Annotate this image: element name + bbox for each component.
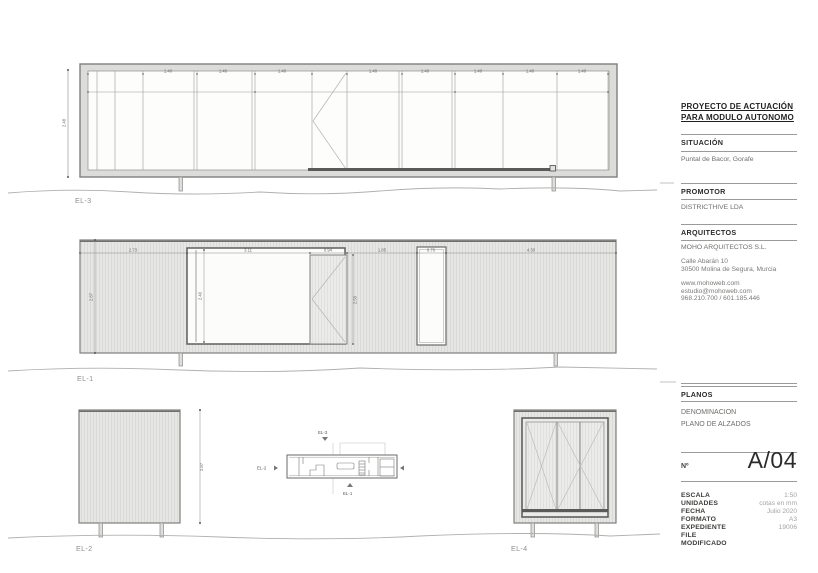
dim-label: 1.40 xyxy=(369,69,378,74)
dim-label: 1.40 xyxy=(474,69,483,74)
dim-label: 2.50 xyxy=(353,295,358,304)
arquitectos-contact: www.mohoweb.com estudio@mohoweb.com 968.… xyxy=(681,280,797,303)
ground-line xyxy=(8,534,660,539)
el3-label: EL-3 xyxy=(75,196,91,205)
dim-label: 4.30 xyxy=(527,248,536,253)
info-row-formato: FORMATOA3 xyxy=(681,516,797,523)
elevations-canvas: 1.40 1.40 1.40 1.40 1.40 1.40 1.40 1.40 … xyxy=(0,0,678,573)
support-post xyxy=(531,523,535,537)
dim-label: 0.94 xyxy=(324,248,333,253)
support-post xyxy=(179,177,183,191)
ground-line xyxy=(8,188,657,194)
dim-label: 1.40 xyxy=(421,69,430,74)
dim-label: 1.40 xyxy=(526,69,535,74)
el2-elevation-drawing: 2.87 EL-2 xyxy=(76,409,204,553)
info-row-unidades: UNIDADEScotas en mm xyxy=(681,500,797,507)
drawing-sheet: 1.40 1.40 1.40 1.40 1.40 1.40 1.40 1.40 … xyxy=(0,0,818,573)
denominacion-label: DENOMINACION xyxy=(681,409,797,416)
el2-label: EL-2 xyxy=(76,544,92,553)
dim-label: 2.87 xyxy=(89,292,94,301)
marker-el2-label: EL-2 xyxy=(257,466,267,471)
info-row-file: FILE xyxy=(681,532,797,539)
el3-door-track xyxy=(308,168,553,171)
situacion-value: Puntal de Bacor, Gorafe xyxy=(681,156,797,163)
arquitectos-heading: ARQUITECTOS xyxy=(681,228,797,237)
info-row-fecha: FECHAJulio 2020 xyxy=(681,508,797,515)
dim-label: 1.40 xyxy=(219,69,228,74)
dim-label: 2.40 xyxy=(198,291,203,300)
key-plan-drawing: EL-3 EL-2 EL-1 xyxy=(257,430,404,496)
el1-narrow-window xyxy=(417,247,446,345)
el4-sill xyxy=(522,509,608,512)
dim-label: 1.40 xyxy=(578,69,587,74)
el3-elevation-drawing: 1.40 1.40 1.40 1.40 1.40 1.40 1.40 1.40 … xyxy=(8,64,657,205)
arquitectos-address: Calle Abarán 10 30500 Molina de Segura, … xyxy=(681,258,797,273)
el1-label: EL-1 xyxy=(77,374,93,383)
dim-label: 1.85 xyxy=(378,248,387,253)
marker-el3-label: EL-3 xyxy=(318,430,328,435)
promotor-value: DISTRICTHIVE LDA xyxy=(681,204,797,211)
project-title: PROYECTO DE ACTUACIÓN PARA MODULO AUTONO… xyxy=(681,101,797,123)
ground-line xyxy=(8,367,657,372)
promotor-heading: PROMOTOR xyxy=(681,187,797,196)
el1-elevation-drawing: 2.40 2.50 xyxy=(8,239,657,383)
phone-numbers: 968.210.700 / 601.185.446 xyxy=(681,295,797,303)
title-block: PROYECTO DE ACTUACIÓN PARA MODULO AUTONO… xyxy=(681,0,797,573)
arquitectos-name: MOHO ARQUITECTOS S.L. xyxy=(681,244,797,251)
sheet-number: A/04 xyxy=(748,447,797,474)
dim-label: 3.11 xyxy=(244,248,253,253)
web-link: www.mohoweb.com xyxy=(681,280,797,288)
marker-el4-arrow xyxy=(400,466,404,471)
support-post xyxy=(554,353,558,366)
sheet-number-label: Nº xyxy=(681,463,689,470)
el4-elevation-drawing: EL-4 xyxy=(511,410,616,553)
dim-label: 1.40 xyxy=(164,69,173,74)
info-row-expediente: EXPEDIENTE19006 xyxy=(681,524,797,531)
planos-heading: PLANOS xyxy=(681,390,797,399)
dim-label: 2.73 xyxy=(129,248,138,253)
info-row-escala: ESCALA1:50 xyxy=(681,492,797,499)
el1-door xyxy=(310,255,347,344)
el3-door-handle xyxy=(550,166,556,172)
support-post xyxy=(552,177,556,191)
situacion-heading: SITUACIÓN xyxy=(681,138,797,147)
marker-el1-label: EL-1 xyxy=(343,491,353,496)
info-row-modificado: MODIFICADO xyxy=(681,540,797,547)
el4-label: EL-4 xyxy=(511,544,527,553)
el3-height-dim: 2.48 xyxy=(62,69,70,178)
support-post xyxy=(179,353,183,366)
dim-label: 0.70 xyxy=(427,248,436,253)
support-post xyxy=(160,523,164,537)
denominacion-value: PLANO DE ALZADOS xyxy=(681,421,797,428)
email-link: estudio@mohoweb.com xyxy=(681,288,797,296)
el2-height-dim: 2.87 xyxy=(199,409,204,524)
dim-label: 2.87 xyxy=(199,462,204,471)
dim-label: 1.40 xyxy=(278,69,287,74)
dim-label: 2.48 xyxy=(62,118,67,127)
